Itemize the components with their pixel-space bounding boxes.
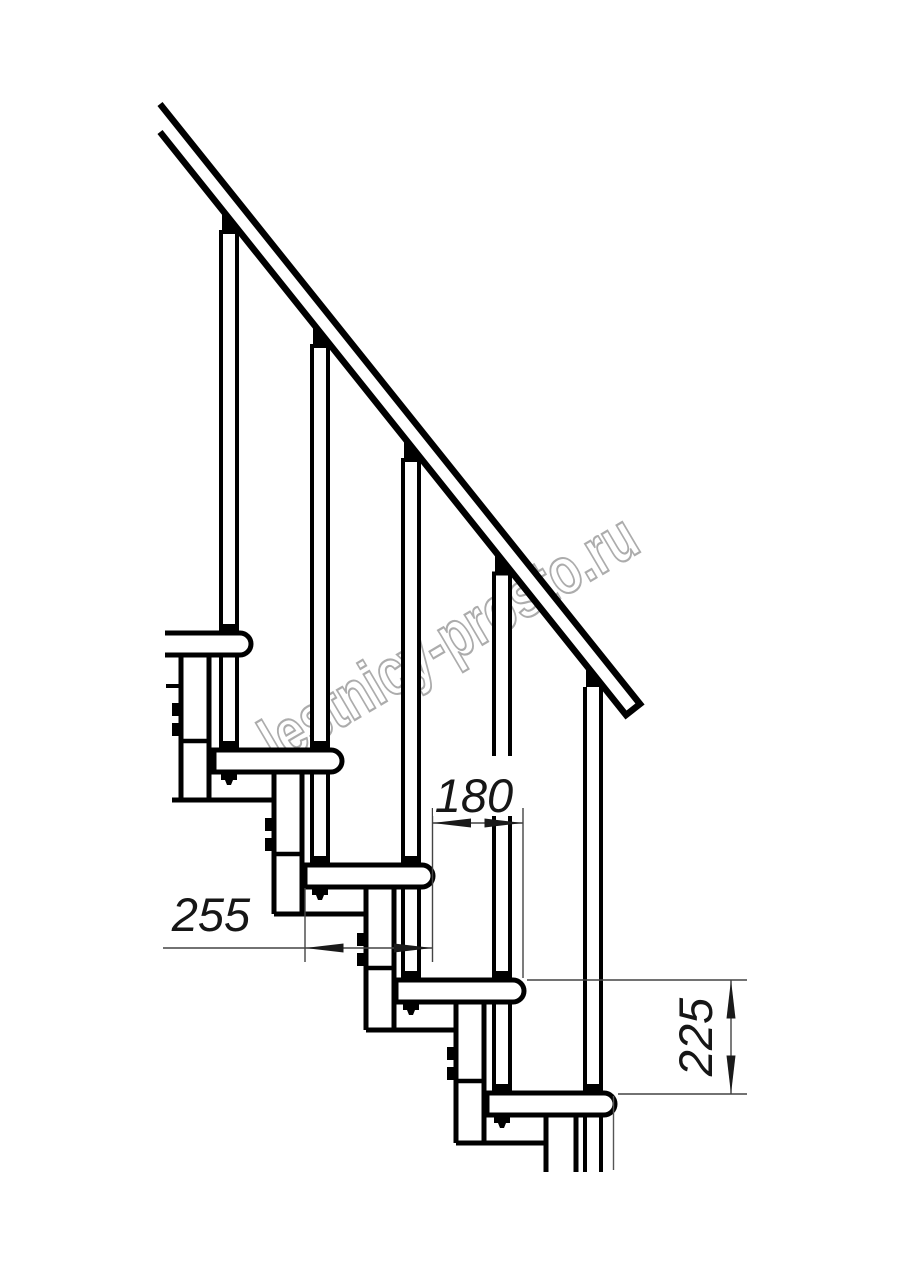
tread-4	[396, 980, 524, 1002]
tread-1	[165, 633, 251, 655]
dim-225-label: 225	[669, 997, 722, 1077]
dim-255-label: 255	[171, 888, 251, 941]
tread-3	[305, 865, 433, 887]
support-module-5	[546, 1115, 576, 1172]
baluster-rod-3	[403, 440, 419, 982]
dim-180-label: 180	[435, 769, 513, 822]
staircase-drawing-page: lestnicy-prosto.ru	[0, 0, 914, 1280]
dimension-riser-height: 225	[527, 980, 747, 1170]
baluster-rod-1	[221, 212, 237, 753]
tread-2	[214, 750, 342, 772]
staircase-drawing: lestnicy-prosto.ru	[0, 0, 914, 1280]
baluster-rod-2	[312, 326, 328, 867]
tread-5	[487, 1093, 615, 1115]
